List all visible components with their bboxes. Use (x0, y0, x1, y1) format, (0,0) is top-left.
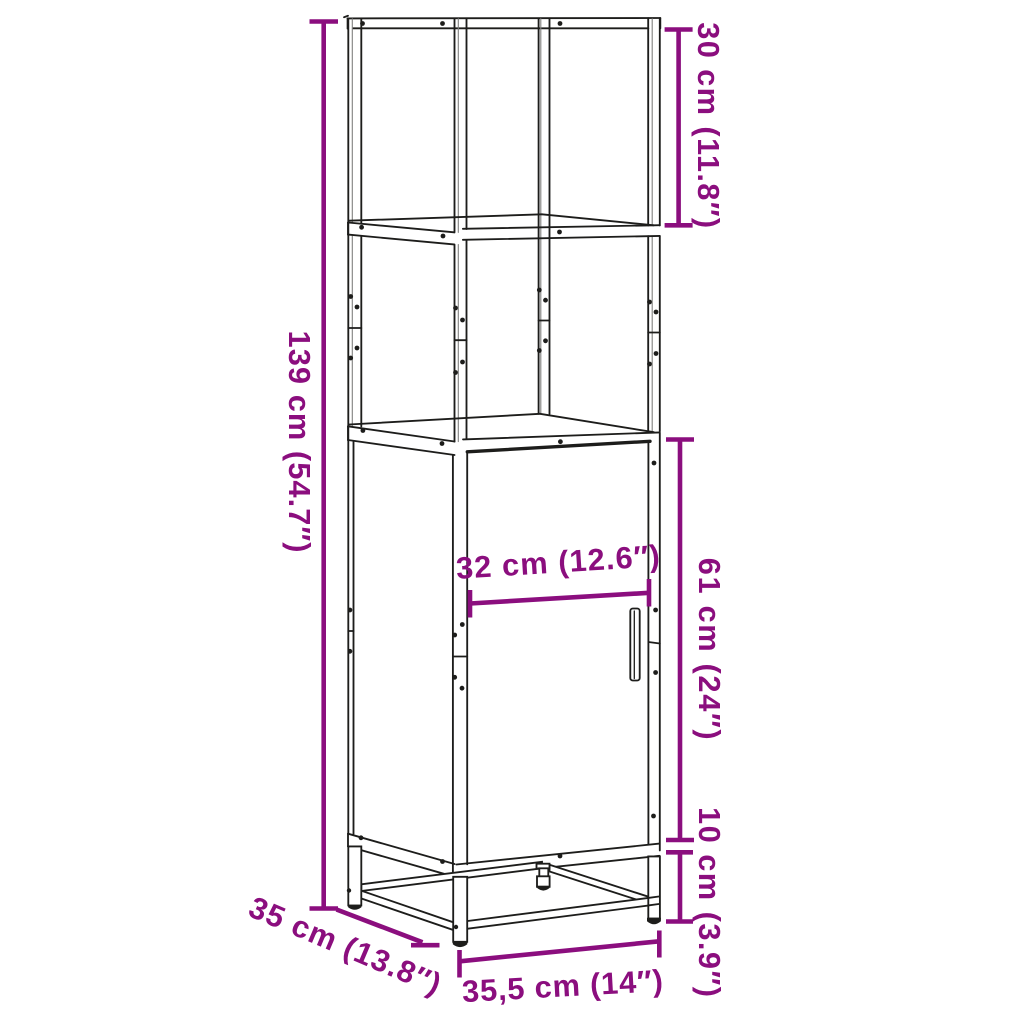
svg-text:61 cm (24″): 61 cm (24″) (692, 558, 727, 740)
svg-text:10 cm (3.9″): 10 cm (3.9″) (692, 807, 727, 997)
svg-text:139 cm (54.7″): 139 cm (54.7″) (282, 331, 317, 553)
